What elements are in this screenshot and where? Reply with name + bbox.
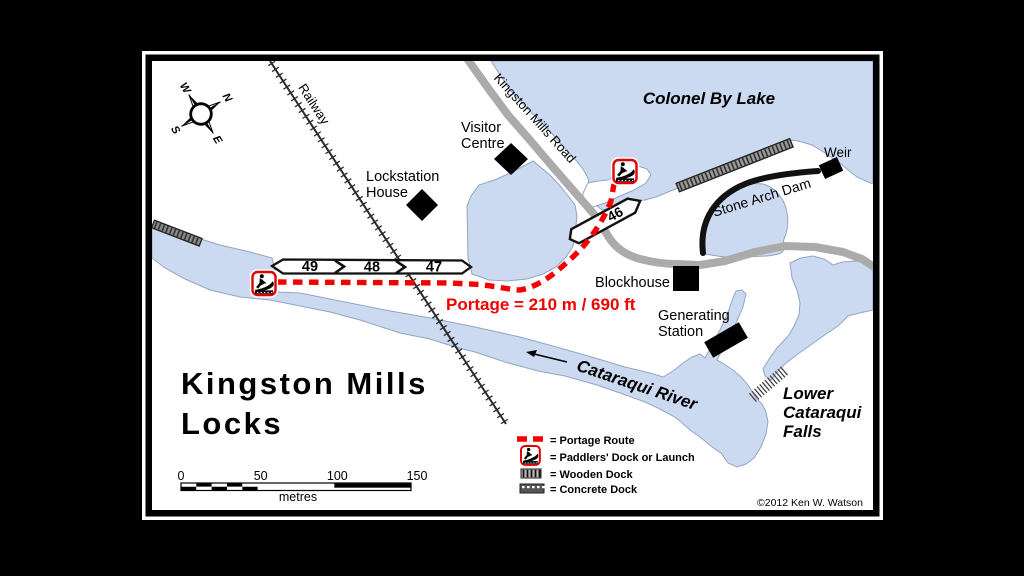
- svg-text:Centre: Centre: [461, 136, 505, 152]
- svg-text:50: 50: [254, 469, 268, 483]
- svg-text:= Paddlers' Dock or Launch: = Paddlers' Dock or Launch: [550, 452, 695, 464]
- svg-text:= Concrete Dock: = Concrete Dock: [550, 484, 638, 496]
- svg-text:Visitor: Visitor: [461, 120, 501, 136]
- svg-text:Lockstation: Lockstation: [366, 169, 439, 185]
- svg-text:Portage = 210 m / 690 ft: Portage = 210 m / 690 ft: [446, 295, 636, 314]
- svg-text:48: 48: [364, 260, 380, 276]
- svg-text:House: House: [366, 185, 408, 201]
- svg-text:Blockhouse: Blockhouse: [595, 275, 670, 291]
- svg-text:Station: Station: [658, 324, 703, 340]
- svg-text:0: 0: [178, 469, 185, 483]
- svg-text:49: 49: [302, 259, 318, 275]
- svg-text:= Wooden Dock: = Wooden Dock: [550, 469, 633, 481]
- svg-text:Colonel By Lake: Colonel By Lake: [643, 89, 775, 108]
- svg-text:Cataraqui: Cataraqui: [783, 403, 863, 422]
- svg-text:47: 47: [426, 260, 442, 276]
- svg-text:= Portage Route: = Portage Route: [550, 435, 635, 447]
- svg-text:Generating: Generating: [658, 308, 730, 324]
- svg-text:Locks: Locks: [181, 406, 283, 441]
- svg-text:Lower: Lower: [783, 384, 834, 403]
- svg-text:150: 150: [407, 469, 428, 483]
- svg-text:metres: metres: [279, 490, 317, 504]
- svg-text:Falls: Falls: [783, 422, 822, 441]
- svg-text:©2012 Ken W. Watson: ©2012 Ken W. Watson: [757, 497, 863, 509]
- svg-text:100: 100: [327, 469, 348, 483]
- svg-text:Kingston Mills: Kingston Mills: [181, 366, 428, 401]
- svg-text:Weir: Weir: [824, 145, 852, 160]
